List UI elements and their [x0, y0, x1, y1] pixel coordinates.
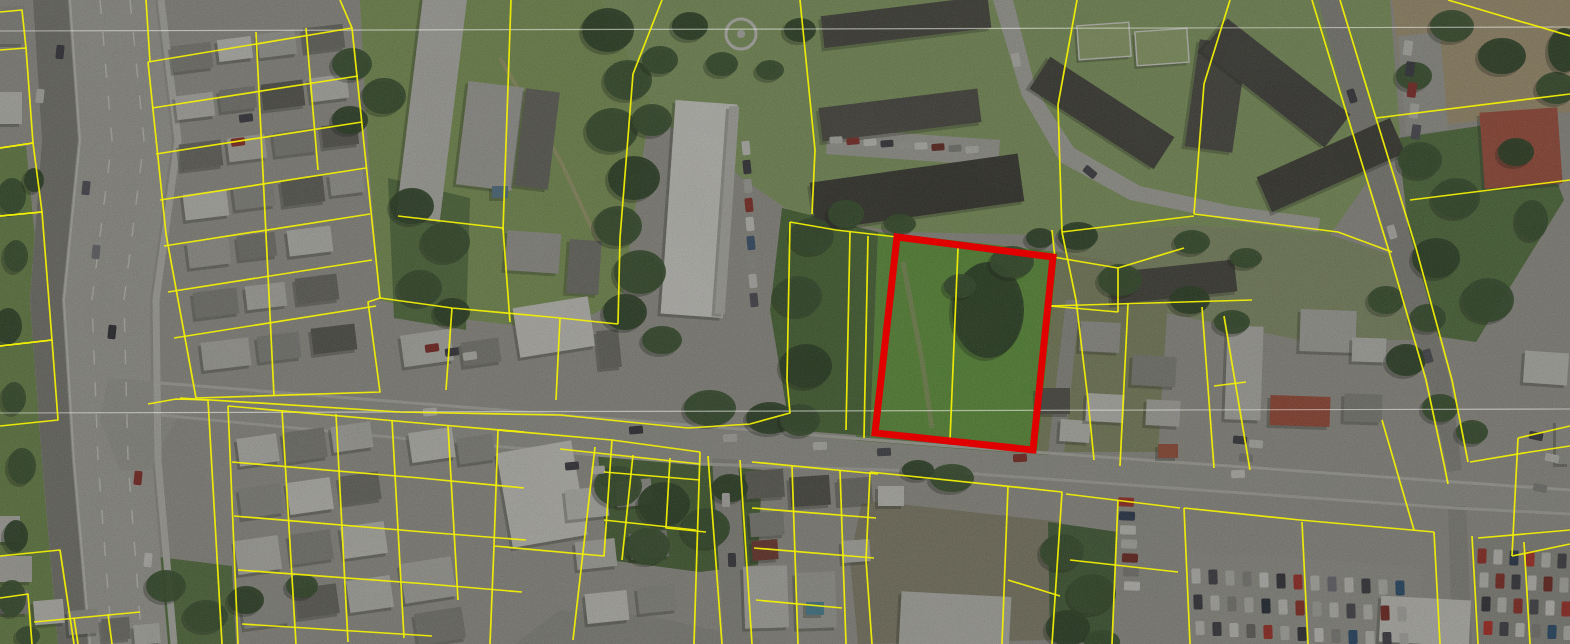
aerial-map[interactable] — [0, 0, 1570, 644]
map-viewport[interactable] — [0, 0, 1570, 644]
imagery-grain-texture — [0, 0, 1570, 644]
